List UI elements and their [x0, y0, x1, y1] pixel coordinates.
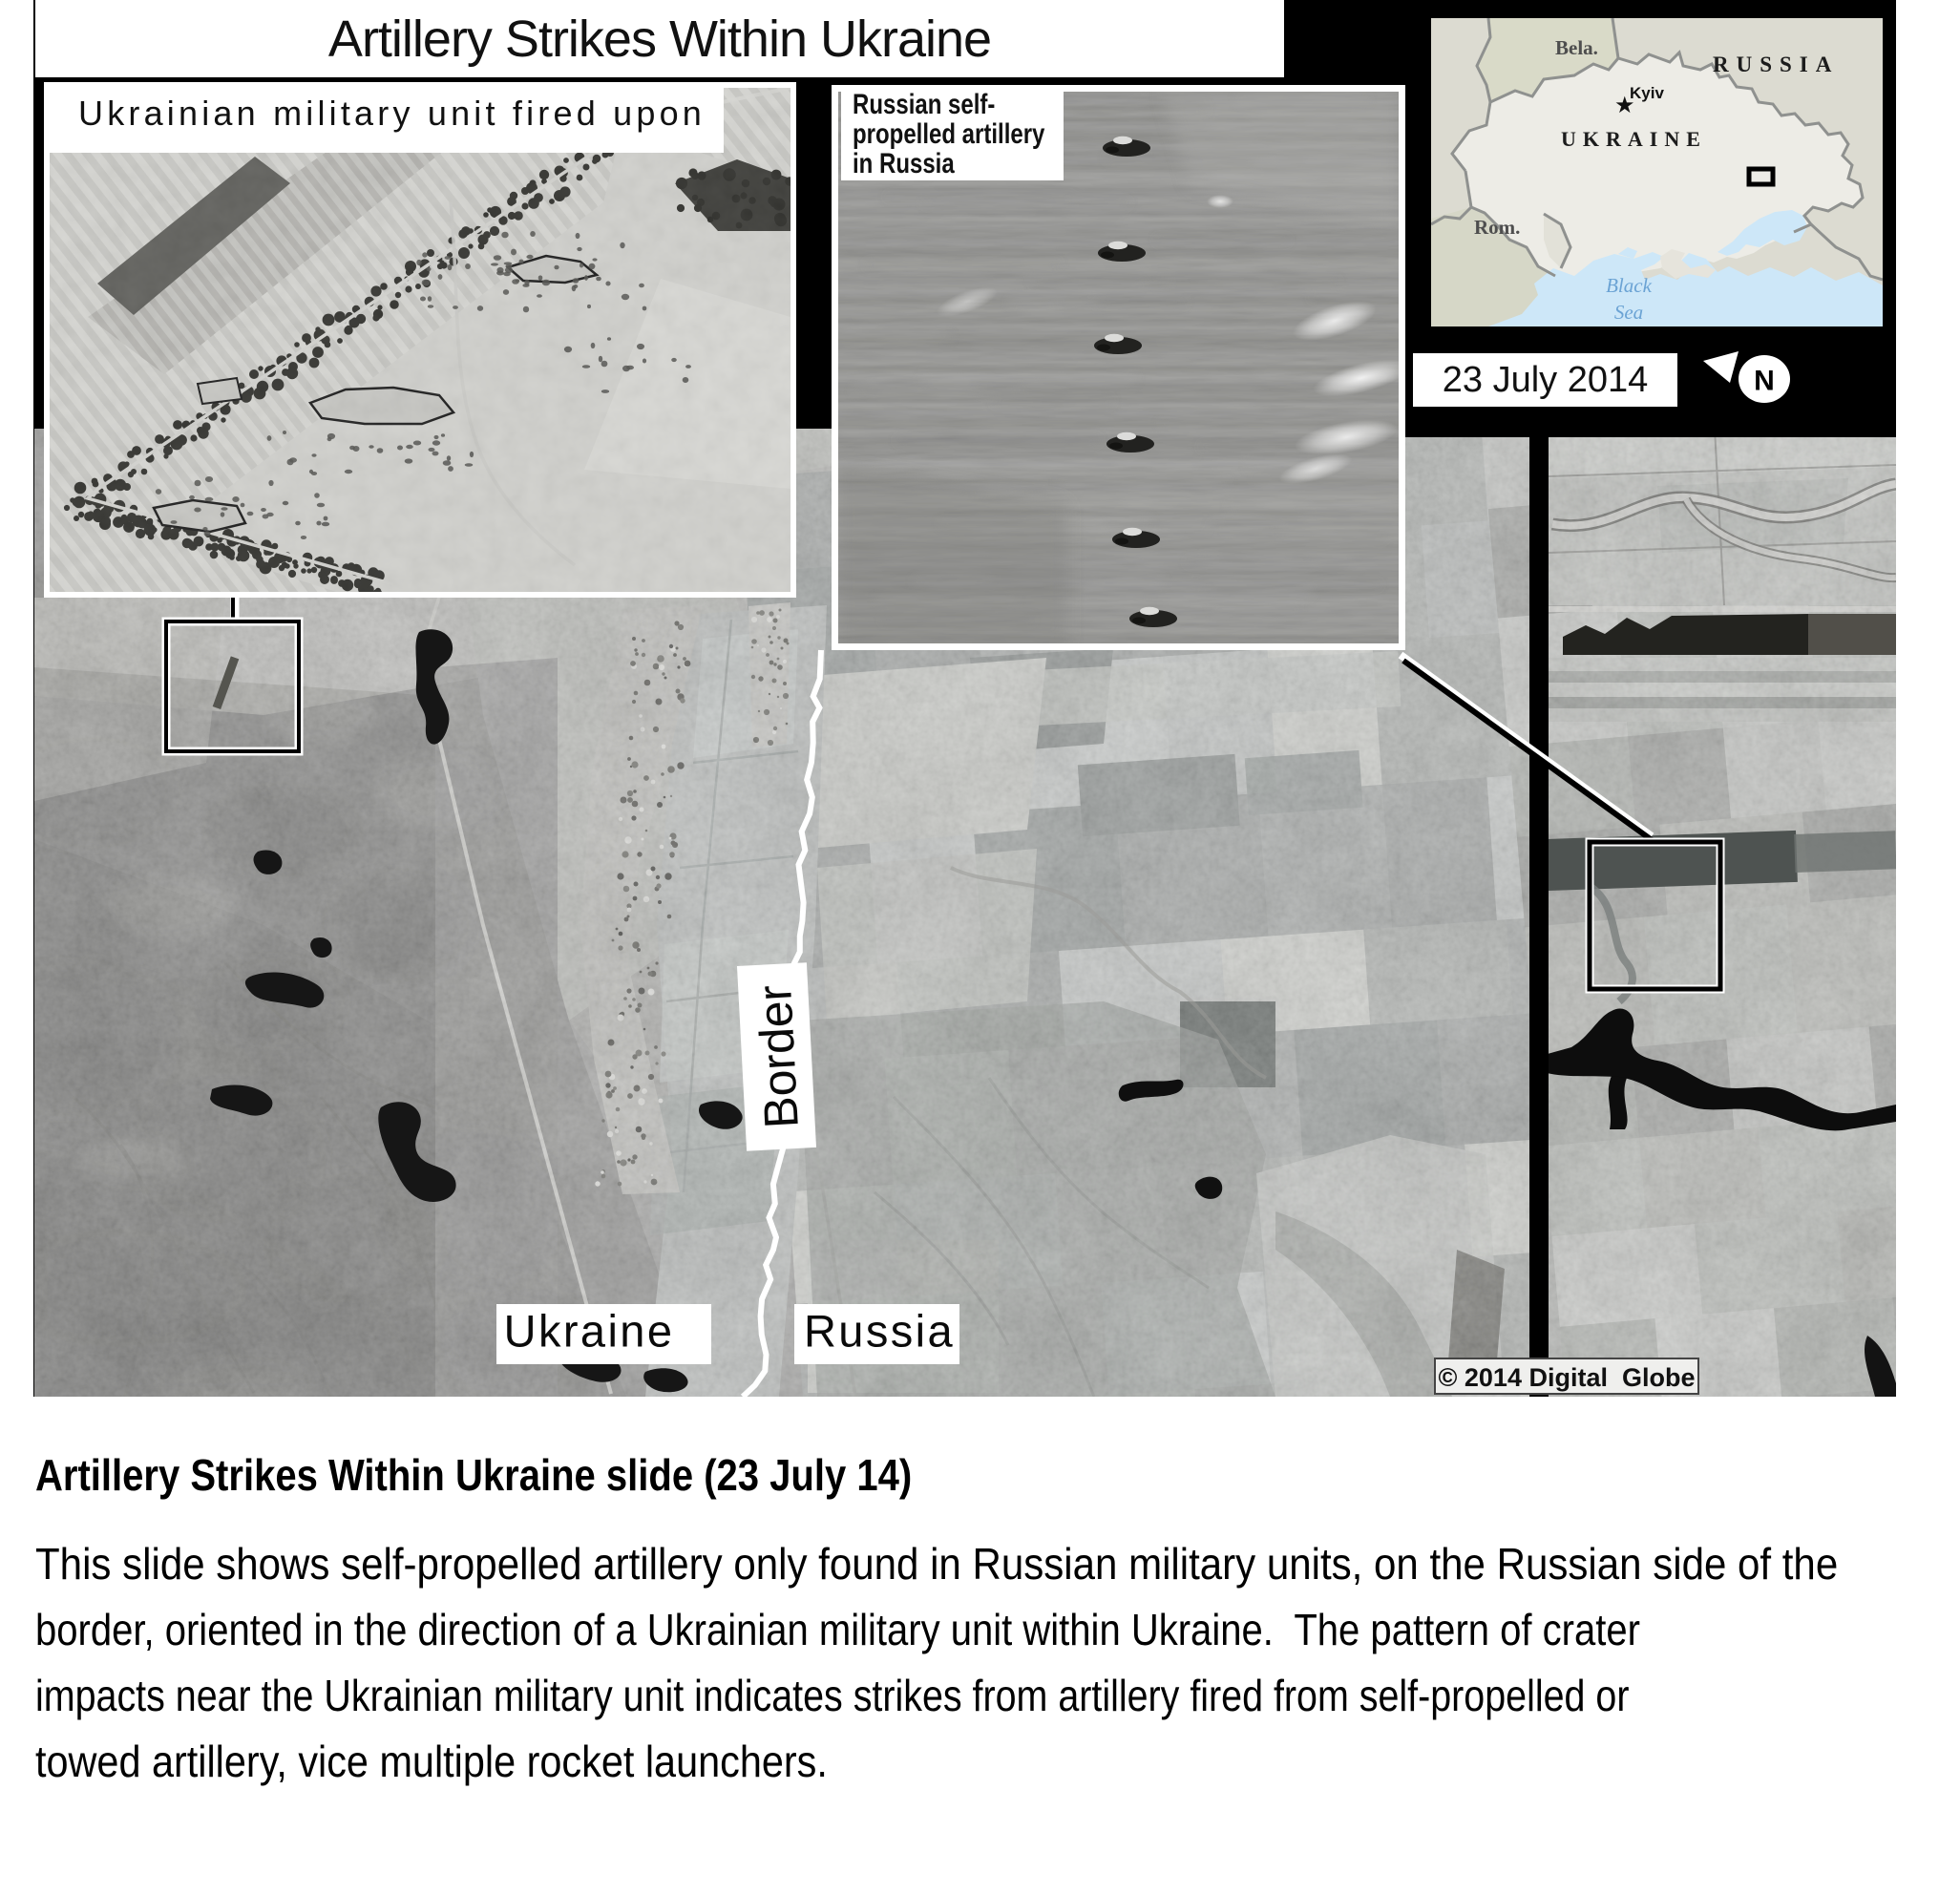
svg-text:UKRAINE: UKRAINE [1561, 127, 1707, 151]
svg-text:Sea: Sea [1614, 301, 1643, 324]
svg-text:© 2014 Digital Globe: © 2014 Digital Globe [1439, 1363, 1696, 1392]
svg-text:Bela.: Bela. [1555, 36, 1598, 59]
svg-text:Ukraine: Ukraine [504, 1306, 675, 1357]
svg-text:Black: Black [1606, 274, 1652, 297]
svg-text:N: N [1754, 366, 1775, 397]
svg-text:Russia: Russia [804, 1306, 955, 1357]
svg-text:★: ★ [1614, 93, 1635, 118]
svg-text:Border: Border [748, 983, 809, 1129]
svg-text:Rom.: Rom. [1474, 216, 1520, 239]
svg-text:RUSSIA: RUSSIA [1713, 53, 1839, 76]
